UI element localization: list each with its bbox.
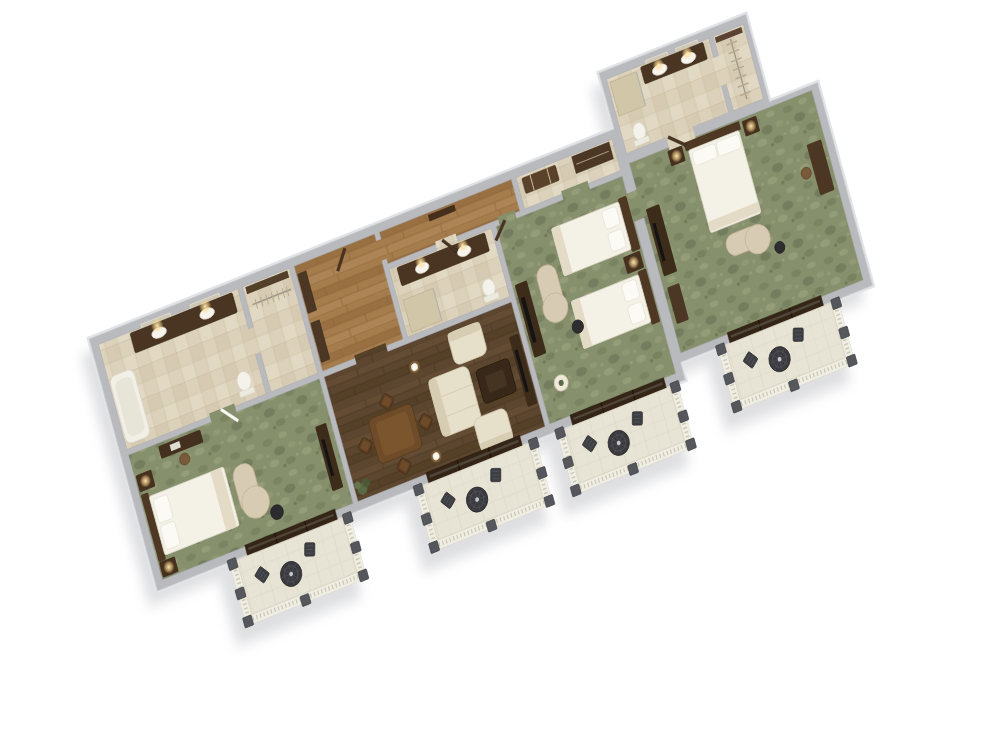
floorplan-svg: 3D isometric floor plan rendering of a t… (0, 0, 1000, 750)
floorplan-canvas: 3D isometric floor plan rendering of a t… (0, 0, 1000, 750)
building (74, 0, 896, 657)
